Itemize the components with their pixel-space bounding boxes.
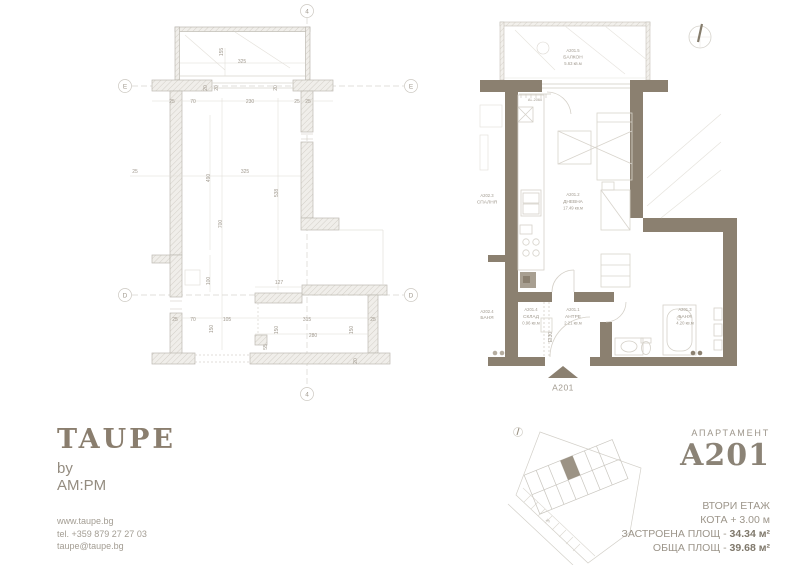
logo-taupe: TAUPE (57, 424, 176, 455)
room-id-bath: A201.3 (678, 307, 692, 312)
furnished-plan: A201.5 БАЛКОН 5.63 кв.м A201.2 ДНЕВНА 17… (465, 10, 745, 395)
bath-fixtures (615, 305, 722, 355)
apartment-number: A201 (550, 438, 770, 473)
dim: 127 (275, 280, 284, 286)
apartment-walls (480, 80, 737, 366)
dim: 105 (223, 317, 232, 323)
dim: 25 (294, 99, 300, 105)
room-area-living: 17.49 кв.м (563, 206, 583, 211)
dim: 150 (274, 326, 280, 335)
elevation-line: КОТА + 3.00 м (550, 513, 770, 527)
entrance-arrow-icon (548, 366, 578, 378)
apartment-info-block: АПАРТАМЕНТ A201 ВТОРИ ЕТАЖ КОТА + 3.00 м… (550, 428, 770, 555)
total-area-value: 39.68 м² (730, 542, 770, 554)
room-name-neighbor-bath: БАНЯ (480, 315, 494, 321)
dim: 100 (206, 277, 212, 286)
dimension-lines (130, 48, 375, 350)
entrance-label: A201 (552, 383, 574, 393)
room-area-balcony: 5.63 кв.м (564, 61, 582, 66)
room-name-neighbor-bedroom: СПАЛНЯ (477, 200, 498, 206)
contact-block: www.taupe.bg tel. +359 879 27 27 03 taup… (57, 515, 147, 553)
dim: 230 (246, 99, 255, 105)
kitchen-fixtures (518, 95, 544, 288)
built-area-label: ЗАСТРОЕНА ПЛОЩ - (622, 528, 730, 540)
room-id-balcony: A201.5 (566, 48, 580, 53)
dim: 25 (172, 317, 178, 323)
room-area-bath: 4.20 кв.м (676, 321, 694, 326)
axis-bubble-d-left: D (123, 292, 128, 299)
logo-by: by (57, 460, 176, 477)
dim: 150 (349, 326, 355, 335)
room-id-storage: A201.4 (524, 307, 538, 312)
room-id-neighbor-bedroom: A202.3 (480, 193, 494, 198)
dim: 280 (309, 333, 318, 339)
fire-door-label: EI30 (548, 332, 554, 343)
logo-block: TAUPE by AM:PM (57, 424, 176, 494)
dim: 25 (305, 99, 311, 105)
dim: 70 (190, 317, 196, 323)
dim: 55 (263, 344, 269, 350)
dim: 25 (370, 317, 376, 323)
dim: 490 (206, 174, 212, 183)
axis-bubble-e-right: E (409, 83, 414, 90)
email-address: taupe@taupe.bg (57, 540, 147, 553)
phone-number: tel. +359 879 27 27 03 (57, 528, 147, 541)
dim: 538 (274, 189, 280, 198)
total-area-label: ОБЩА ПЛОЩ - (653, 542, 730, 554)
window-type-label: AL.2060 (528, 98, 542, 102)
apartment-label: АПАРТАМЕНТ (550, 428, 770, 438)
dim: 325 (238, 59, 247, 65)
dim: 20 (214, 85, 220, 91)
room-id-hall: A201.1 (566, 307, 580, 312)
dim: 20 (203, 85, 209, 91)
room-name-storage: СКЛАД (523, 314, 540, 320)
plan-sheet: 4 4 E E D D (0, 0, 800, 565)
floor-line: ВТОРИ ЕТАЖ (550, 499, 770, 513)
room-area-storage: 0.96 кв.м (522, 321, 540, 326)
dim: 155 (219, 48, 225, 57)
axis-bubble-4-top: 4 (305, 8, 309, 15)
dim: 150 (209, 325, 215, 334)
dim: 20 (273, 85, 279, 91)
hall-furniture (541, 318, 552, 332)
room-name-hall: АНТРЕ (565, 314, 581, 320)
built-area-value: 34.34 м² (730, 528, 770, 540)
dim: 700 (218, 220, 224, 229)
website-link: www.taupe.bg (57, 515, 147, 528)
north-arrow-icon (689, 24, 711, 48)
dim: 315 (303, 317, 312, 323)
site-north-icon (514, 428, 523, 437)
dim: 325 (241, 169, 250, 175)
room-id-neighbor-bath: A202.4 (480, 309, 494, 314)
axis-bubble-4-bottom: 4 (305, 391, 309, 398)
room-name-balcony: БАЛКОН (563, 55, 583, 61)
dim: 25 (132, 169, 138, 175)
total-area-line: ОБЩА ПЛОЩ - 39.68 м² (550, 541, 770, 555)
room-id-living: A201.2 (566, 192, 580, 197)
dimension-labels: 325 155 25 70 230 25 25 20 20 20 25 490 … (132, 48, 376, 364)
built-area-line: ЗАСТРОЕНА ПЛОЩ - 34.34 м² (550, 527, 770, 541)
room-name-living: ДНЕВНА (563, 199, 584, 205)
dim: 25 (169, 99, 175, 105)
dim: 70 (190, 99, 196, 105)
door-swings (544, 92, 626, 357)
hatched-walls (152, 27, 390, 364)
construction-plan: 4 4 E E D D (105, 0, 425, 405)
axis-bubble-d-right: D (409, 292, 414, 299)
room-name-bath: БАНЯ (678, 314, 692, 320)
dim: 20 (353, 358, 359, 364)
logo-ampm: AM:PM (57, 477, 176, 494)
axis-bubble-e-left: E (123, 83, 128, 90)
room-area-hall: 2.21 кв.м (564, 321, 582, 326)
